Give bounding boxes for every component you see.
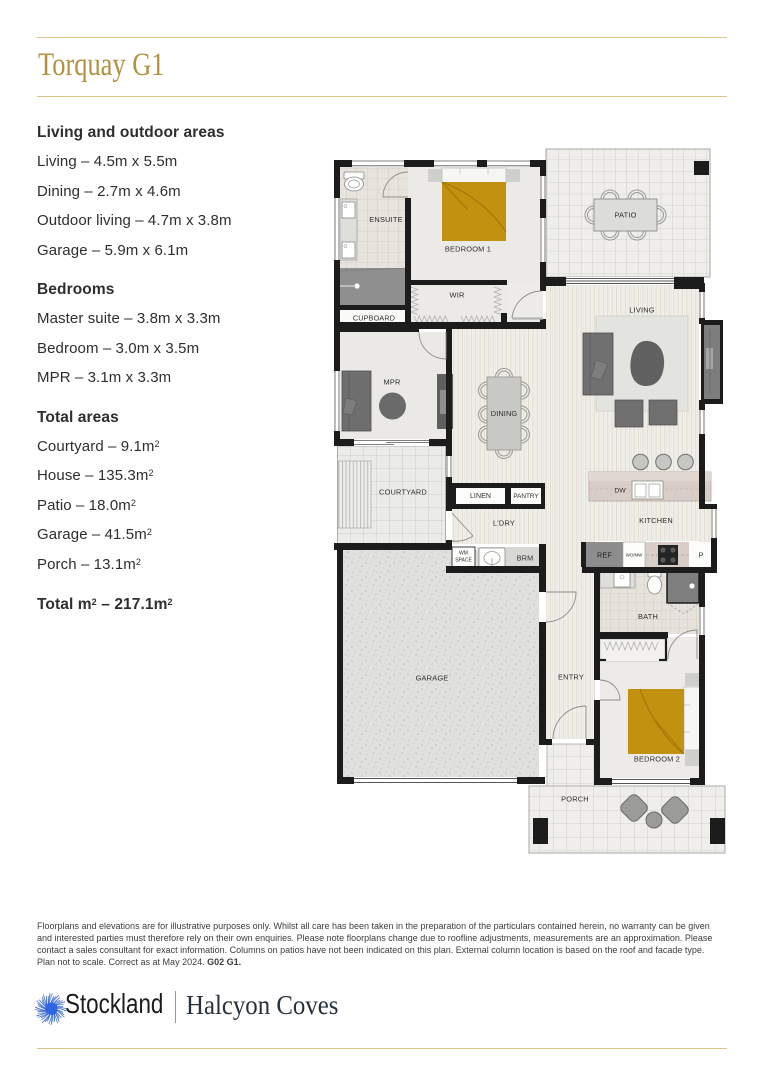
svg-text:PATIO: PATIO (614, 211, 636, 220)
svg-text:LIVING: LIVING (629, 306, 654, 315)
svg-text:ENTRY: ENTRY (558, 673, 584, 682)
svg-text:REF: REF (597, 551, 612, 560)
svg-text:ENSUITE: ENSUITE (369, 215, 402, 224)
svg-text:BATH: BATH (638, 612, 658, 621)
svg-text:DW: DW (614, 488, 626, 495)
svg-text:LINEN: LINEN (470, 493, 491, 500)
svg-text:WIR: WIR (450, 291, 465, 300)
svg-text:BRM: BRM (517, 554, 534, 563)
svg-text:WO/MW: WO/MW (626, 553, 643, 558)
svg-text:CUPBOARD: CUPBOARD (353, 314, 395, 323)
svg-text:COURTYARD: COURTYARD (379, 488, 427, 497)
svg-text:KITCHEN: KITCHEN (639, 516, 673, 525)
svg-text:PORCH: PORCH (561, 795, 589, 804)
svg-text:MPR: MPR (383, 378, 400, 387)
svg-text:P: P (699, 551, 704, 560)
svg-text:BEDROOM 1: BEDROOM 1 (445, 245, 491, 254)
svg-text:GARAGE: GARAGE (416, 674, 449, 683)
svg-text:SPACE: SPACE (455, 558, 472, 564)
svg-text:PANTRY: PANTRY (513, 493, 539, 500)
svg-text:DINING: DINING (491, 409, 518, 418)
svg-text:L'DRY: L'DRY (493, 519, 515, 528)
svg-text:WM: WM (459, 551, 468, 557)
svg-text:BEDROOM 2: BEDROOM 2 (634, 755, 680, 764)
